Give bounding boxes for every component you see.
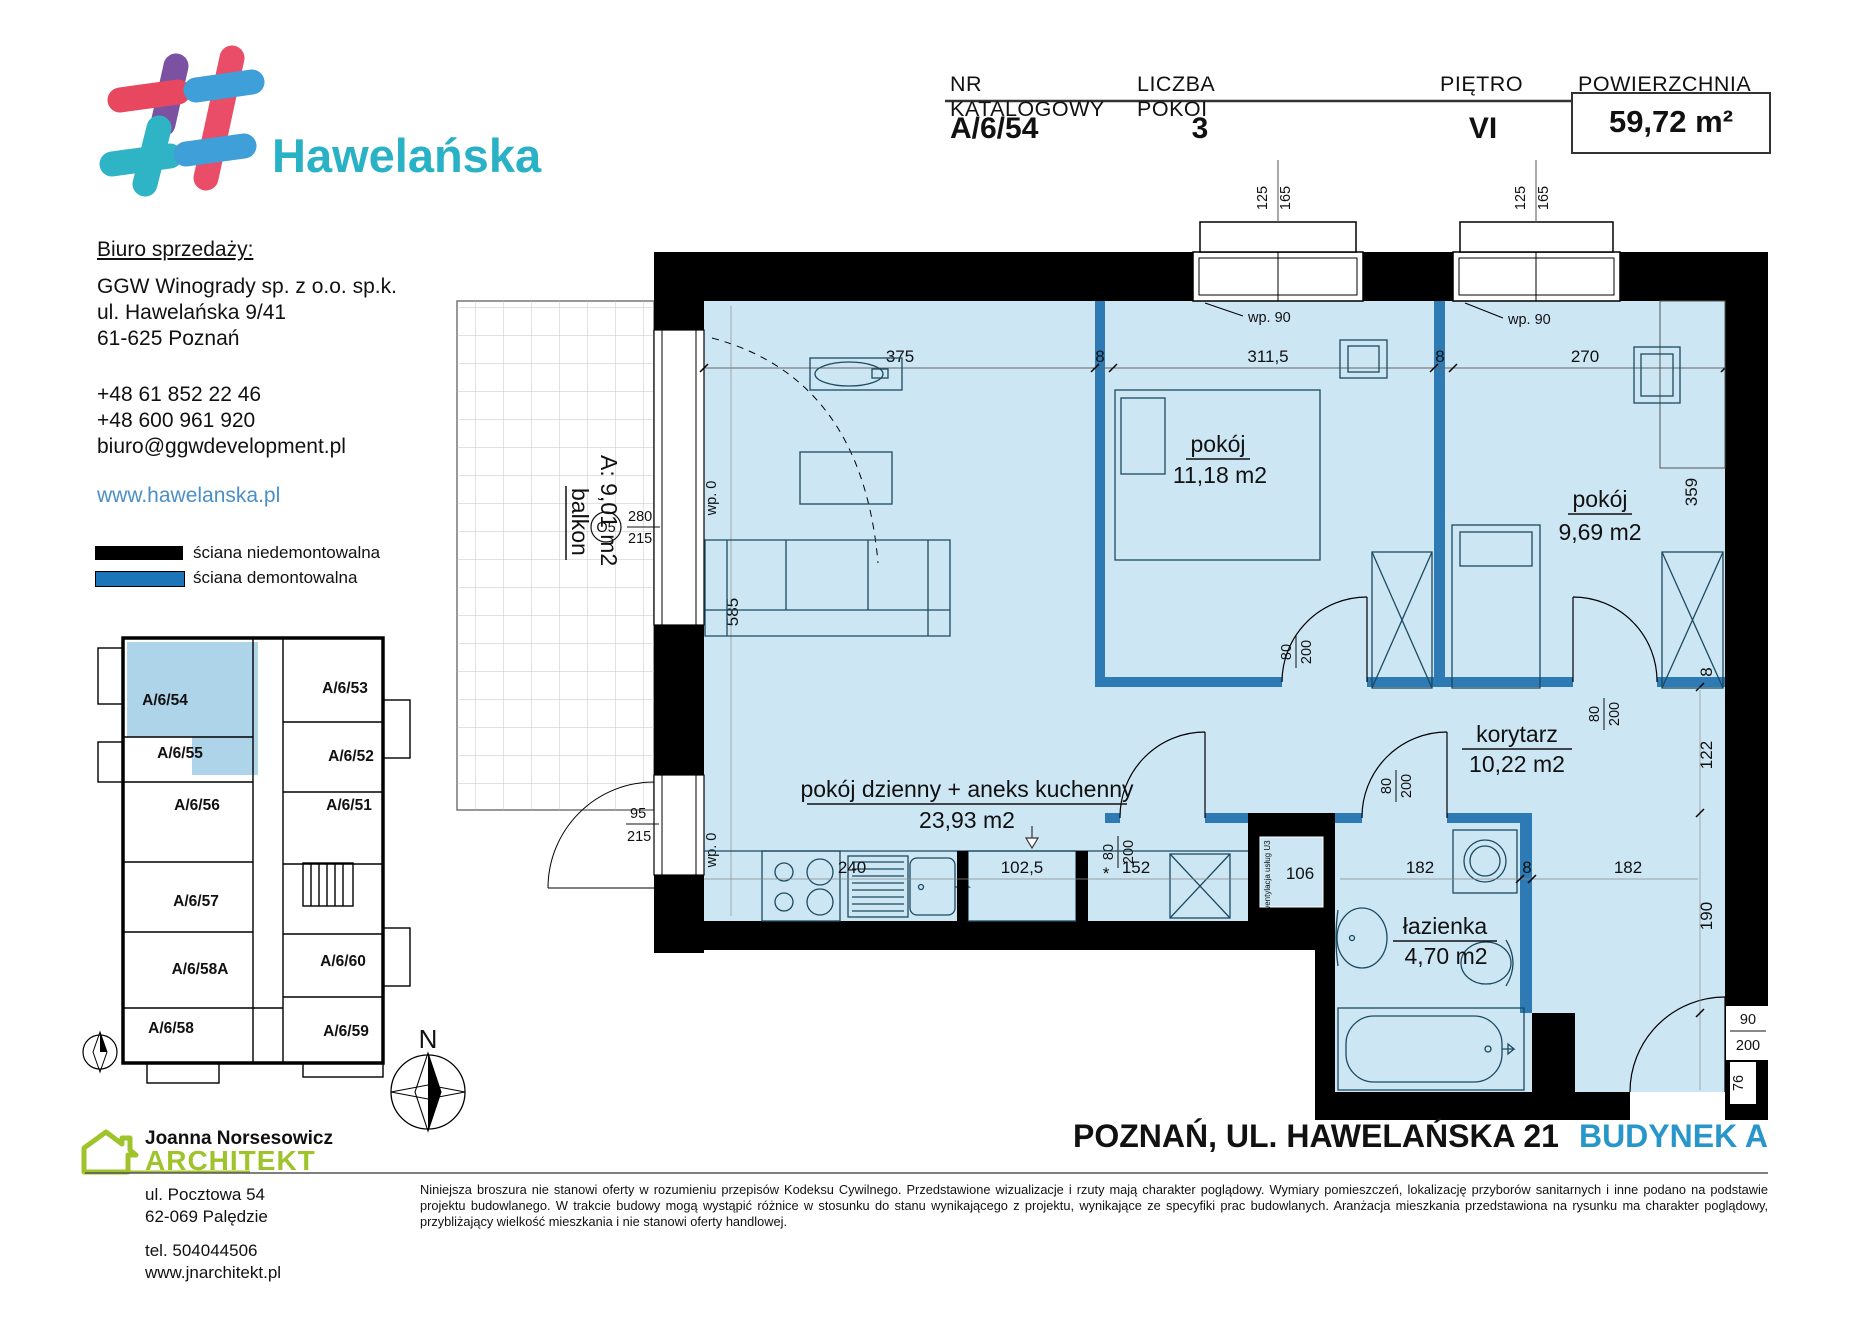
legend-swatch-removable-wall xyxy=(95,571,185,587)
unit-table-header-area: POWIERZCHNIA xyxy=(1578,72,1768,97)
sales-office-company: GGW Winogrady sp. z o.o. sp.k. xyxy=(97,274,397,300)
window-1 xyxy=(1193,160,1363,316)
door-w: 80 xyxy=(1587,706,1603,722)
bedroom1-area: 11,18 m2 xyxy=(1173,462,1267,488)
door-h: 200 xyxy=(1299,640,1315,664)
sales-office-phone2: +48 600 961 920 xyxy=(97,408,255,434)
door-h: 200 xyxy=(1607,702,1623,726)
wp90-label-2: wp. 90 xyxy=(1507,312,1551,328)
entrance-door-w: 90 xyxy=(1740,1012,1756,1028)
mini-building-plan: A/6/54 A/6/53 A/6/55 A/6/52 A/6/56 A/6/5… xyxy=(83,638,410,1083)
door-w: 80 xyxy=(1279,644,1295,660)
mini-unit-a660: A/6/60 xyxy=(320,953,366,970)
mini-compass-icon xyxy=(83,1032,117,1072)
dim-wall-d: 8 xyxy=(1522,858,1531,877)
window-2 xyxy=(1453,160,1620,318)
dim-wall-a: 8 xyxy=(1095,347,1104,366)
mini-unit-a652: A/6/52 xyxy=(328,748,374,765)
architect-title: ARCHITEKT xyxy=(145,1145,316,1177)
unit-area-value: 59,72 m² xyxy=(1572,104,1770,140)
unit-catalog-no: A/6/54 xyxy=(950,112,1038,146)
compass-icon: N xyxy=(391,1024,465,1131)
sales-office-city: 61-625 Poznań xyxy=(97,326,239,352)
door-h: 200 xyxy=(1399,774,1415,798)
dim-bed-depth: 359 xyxy=(1682,478,1701,506)
dim-wall-b: 8 xyxy=(1435,347,1444,366)
dim-bal-win-h: 215 xyxy=(628,531,652,547)
sales-office-heading: Biuro sprzedaży: xyxy=(97,238,253,262)
dim-bal-win-w: 280 xyxy=(628,509,652,525)
vent-label: wentylacja usług U3 xyxy=(1263,840,1272,913)
mini-unit-a657: A/6/57 xyxy=(173,893,219,910)
corridor-name: korytarz xyxy=(1476,721,1558,747)
footer-disclaimer: Niniejsza broszura nie stanowi oferty w … xyxy=(420,1182,1768,1229)
sales-office-street: ul. Hawelańska 9/41 xyxy=(97,300,286,326)
o5-label: O5 xyxy=(596,520,615,536)
mini-unit-a651: A/6/51 xyxy=(326,797,372,814)
architect-city: 62-069 Palędzie xyxy=(145,1206,268,1228)
architect-phone: tel. 504044506 xyxy=(145,1240,258,1262)
unit-table-header-floor: PIĘTRO xyxy=(1440,72,1530,97)
unit-floor: VI xyxy=(1443,112,1523,146)
footer-city-line: POZNAŃ, UL. HAWELAŃSKA 21 xyxy=(1073,1118,1559,1155)
entrance-door-h: 200 xyxy=(1736,1038,1760,1054)
mini-unit-a654: A/6/54 xyxy=(142,692,188,709)
door-w: 80 xyxy=(1379,778,1395,794)
dim-kitchen-c: 152 xyxy=(1122,858,1150,877)
legend-label-removable-wall: ściana demontowalna xyxy=(193,568,357,588)
sales-office-phone1: +48 61 852 22 46 xyxy=(97,382,261,408)
sales-office-email: biuro@ggwdevelopment.pl xyxy=(97,434,346,460)
bathroom-area: 4,70 m2 xyxy=(1404,943,1487,969)
mini-unit-a658: A/6/58 xyxy=(148,1020,194,1037)
footer-title-row: POZNAŃ, UL. HAWELAŃSKA 21 BUDYNEK A xyxy=(1073,1118,1768,1155)
dim-win1-w: 125 xyxy=(1255,186,1271,210)
dim-bath-w: 182 xyxy=(1406,858,1434,877)
legend-swatch-fixed-wall xyxy=(95,546,183,560)
living-name: pokój dzienny + aneks kuchenny xyxy=(800,776,1134,802)
bedroom1-name: pokój xyxy=(1191,431,1246,457)
dim-win1-h: 165 xyxy=(1278,186,1294,210)
brand-logo-icon xyxy=(112,58,252,184)
dim-star-mark: * xyxy=(1103,864,1110,883)
main-floor-plan: balkon A: 9,01 m2 xyxy=(457,160,1770,1120)
dim-ent-side: 76 xyxy=(1731,1075,1747,1091)
door-w: 80 xyxy=(1101,844,1117,860)
dim-kitchen-b: 102,5 xyxy=(1001,858,1044,877)
wp90-label-1: wp. 90 xyxy=(1247,310,1291,326)
mini-unit-a658a: A/6/58A xyxy=(172,961,229,978)
living-area: 23,93 m2 xyxy=(919,807,1015,833)
dim-win2-w: 125 xyxy=(1513,186,1529,210)
unit-rooms-count: 3 xyxy=(1160,112,1240,146)
dim-hall-w: 182 xyxy=(1614,858,1642,877)
dim-shaft: 106 xyxy=(1286,864,1314,883)
brochure-page: balkon A: 9,01 m2 xyxy=(0,0,1871,1323)
dim-win2-h: 165 xyxy=(1536,186,1552,210)
mini-unit-a656: A/6/56 xyxy=(174,797,220,814)
bedroom2-name: pokój xyxy=(1573,486,1628,512)
dim-living-w: 375 xyxy=(886,347,914,366)
dim-cor-h: 122 xyxy=(1697,741,1716,769)
sales-office-website[interactable]: www.hawelanska.pl xyxy=(97,484,280,508)
footer-building: BUDYNEK A xyxy=(1579,1118,1768,1155)
legend-label-fixed-wall: ściana niedemontowalna xyxy=(193,543,380,563)
vent-shaft: wentylacja usług U3 106 xyxy=(1260,837,1323,913)
balcony: balkon A: 9,01 m2 xyxy=(457,301,654,810)
entrance-door-gap xyxy=(1630,1092,1725,1120)
architect-website[interactable]: www.jnarchitekt.pl xyxy=(145,1262,281,1284)
dim-bed1-w: 311,5 xyxy=(1247,347,1288,366)
mini-unit-a659: A/6/59 xyxy=(323,1023,369,1040)
dim-wall-c: 8 xyxy=(1697,667,1716,676)
dim-bed2-w: 270 xyxy=(1571,347,1599,366)
bedroom2-area: 9,69 m2 xyxy=(1558,519,1641,545)
mini-unit-a653: A/6/53 xyxy=(322,680,368,697)
dim-bal-door-h: 215 xyxy=(627,829,651,845)
corridor-area: 10,22 m2 xyxy=(1469,751,1565,777)
mini-unit-a655: A/6/55 xyxy=(157,745,203,762)
compass-north-label: N xyxy=(419,1024,438,1054)
balcony-area: A: 9,01 m2 xyxy=(596,455,622,566)
dim-bal-door-w: 95 xyxy=(630,806,646,822)
bathroom-name: łazienka xyxy=(1403,913,1488,939)
architect-street: ul. Pocztowa 54 xyxy=(145,1184,265,1206)
balcony-name: balkon xyxy=(567,488,593,556)
dim-bath-side: 190 xyxy=(1697,902,1716,930)
wp0-label-1: wp. 0 xyxy=(704,481,720,517)
dim-living-h: 585 xyxy=(723,598,742,626)
dim-kitchen-a: 240 xyxy=(838,858,866,877)
brand-name: Hawelańska xyxy=(272,128,541,183)
apartment-floor xyxy=(704,301,1725,1092)
